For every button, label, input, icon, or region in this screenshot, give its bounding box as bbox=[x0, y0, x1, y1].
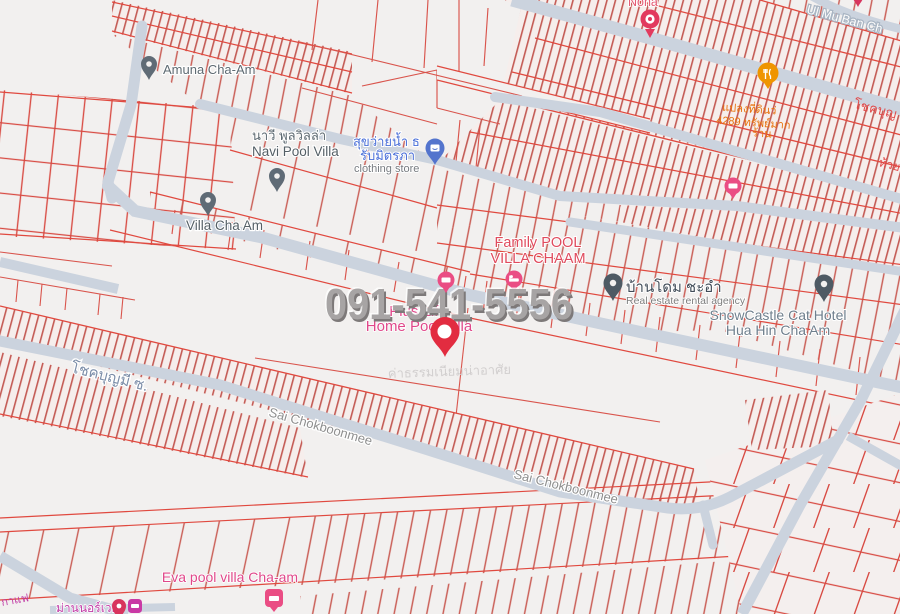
svg-text:Eva pool villa Cha-am: Eva pool villa Cha-am bbox=[162, 569, 298, 585]
svg-text:clothing store: clothing store bbox=[354, 163, 419, 175]
svg-text:รับมิตรภา: รับมิตรภา bbox=[360, 148, 415, 163]
svg-text:Nona: Nona bbox=[628, 0, 658, 9]
svg-text:บ้านโดม ชะอำ: บ้านโดม ชะอำ bbox=[626, 278, 722, 296]
svg-text:ร้าน: ร้าน bbox=[752, 127, 773, 140]
svg-text:VILLA CHAAM: VILLA CHAAM bbox=[490, 251, 585, 267]
svg-text:นาวี พูลวิลล่า: นาวี พูลวิลล่า bbox=[252, 128, 326, 144]
svg-text:Hua Hin Cha Am: Hua Hin Cha Am bbox=[726, 322, 830, 338]
svg-text:SnowCastle Cat Hotel: SnowCastle Cat Hotel bbox=[710, 307, 847, 323]
svg-text:Villa Cha Am: Villa Cha Am bbox=[186, 218, 263, 233]
svg-text:Navi Pool Villa: Navi Pool Villa bbox=[252, 144, 339, 159]
svg-text:Family POOL: Family POOL bbox=[494, 235, 581, 251]
svg-text:Real estate rental agency: Real estate rental agency bbox=[626, 295, 746, 307]
svg-text:ม่านนอร์เวย์: ม่านนอร์เวย์ bbox=[56, 601, 119, 614]
svg-text:Amuna Cha-Am: Amuna Cha-Am bbox=[163, 62, 255, 77]
